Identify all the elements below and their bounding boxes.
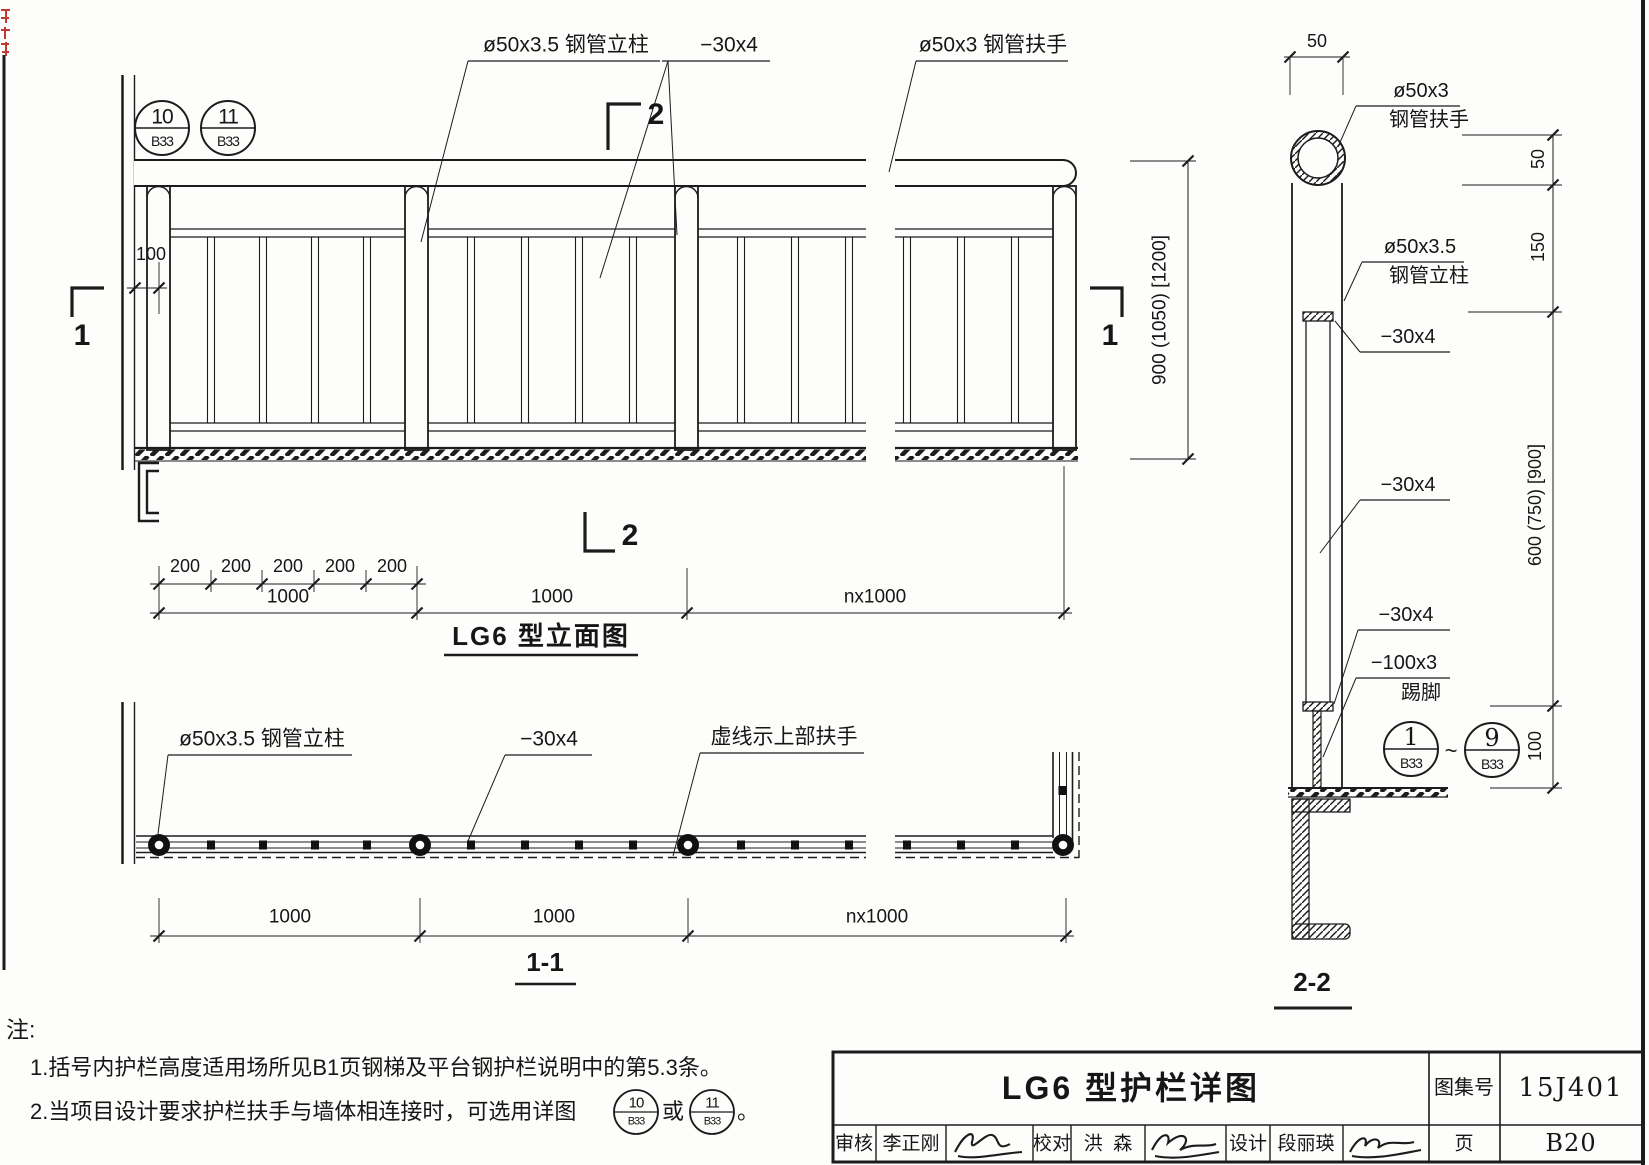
section-title: 2-2	[1293, 969, 1331, 995]
sect-dim-top-50: 50	[1307, 32, 1327, 50]
note-item-2-or: 或	[662, 1101, 684, 1123]
titleblock-title: LG6 型护栏详图	[1002, 1072, 1260, 1104]
elev-dim-nx1000: nx1000	[844, 588, 906, 607]
designer-name: 段丽瑛	[1277, 1135, 1334, 1154]
note-bubble11-num: 11	[705, 1096, 719, 1111]
atlas-label: 图集号	[1434, 1078, 1494, 1098]
plan-dim-1000b: 1000	[533, 908, 575, 927]
section-linework	[1274, 52, 1562, 1009]
note-bubble10-num: 10	[629, 1096, 644, 1111]
sect-toprail-label: −30x4	[1380, 327, 1435, 347]
sect-post-spec: ø50x3.5	[1384, 237, 1456, 257]
sect-toe-spec: −100x3	[1371, 653, 1437, 673]
elev-dim-1000b: 1000	[531, 588, 573, 607]
reviewer-name: 李正刚	[882, 1135, 939, 1154]
checker-label: 校对	[1033, 1135, 1071, 1154]
note-bubble11-ref: B33	[704, 1117, 721, 1128]
sect-dim-100: 100	[1526, 731, 1544, 761]
elev-dim-height: 900 (1050) [1200]	[1151, 235, 1170, 385]
note-bubble10-ref: B33	[628, 1117, 645, 1128]
sect-bubble1-num: 1	[1403, 725, 1418, 749]
elev-dim-200-5: 200	[377, 557, 407, 575]
elev-section1-marker-right: 1	[1102, 321, 1119, 351]
atlas-number: 15J401	[1518, 1075, 1623, 1101]
page-label: 页	[1454, 1135, 1473, 1154]
elev-dim-1000a: 1000	[267, 588, 309, 607]
plan-dim-1000a: 1000	[269, 908, 311, 927]
elev-dim-200-2: 200	[221, 557, 251, 575]
notes-head: 注:	[6, 1019, 35, 1042]
elev-flatbar-label: −30x4	[700, 35, 758, 56]
sect-post-name: 钢管立柱	[1389, 266, 1469, 286]
sect-dim-150: 150	[1529, 232, 1547, 262]
elev-dim-200-3: 200	[273, 557, 303, 575]
elev-dim-200-1: 200	[170, 557, 200, 575]
elev-section2-marker-top: 2	[648, 100, 665, 130]
plan-flatbar-label: −30x4	[520, 729, 578, 750]
sect-toe-name: 踢脚	[1401, 683, 1441, 703]
sect-dim-main: 600 (750) [900]	[1526, 444, 1544, 566]
sect-bubble1-ref: B33	[1400, 756, 1422, 770]
elev-section2-marker-bottom: 2	[622, 521, 639, 551]
sect-bubble9-ref: B33	[1481, 757, 1503, 771]
note-item-2: 2.当项目设计要求护栏扶手与墙体相连接时，可选用详图	[30, 1101, 576, 1123]
elev-bubble11-ref: B33	[217, 134, 239, 148]
elev-section1-marker-left: 1	[74, 321, 91, 351]
note-item-1: 1.括号内护栏高度适用场所见B1页钢梯及平台钢护栏说明中的第5.3条。	[30, 1057, 722, 1079]
checker-name: 洪 森	[1084, 1135, 1133, 1154]
plan-dim-nx1000: nx1000	[846, 908, 908, 927]
drawing-linework	[0, 0, 1649, 1165]
plan-dashed-label: 虚线示上部扶手	[711, 727, 858, 748]
sect-botrail-label: −30x4	[1378, 605, 1433, 625]
note-item-2-end: 。	[737, 1101, 759, 1123]
sect-dim-50: 50	[1529, 149, 1547, 169]
elev-dim-200-4: 200	[325, 557, 355, 575]
signature-marks	[955, 1134, 1421, 1158]
elev-handrail-label: ø50x3 钢管扶手	[919, 35, 1067, 56]
plan-title: 1-1	[526, 949, 564, 975]
sect-handrail-spec: ø50x3	[1393, 81, 1449, 101]
plan-post-label: ø50x3.5 钢管立柱	[179, 729, 345, 750]
red-watermark-fragment	[1, 9, 10, 56]
sect-bubble9-num: 9	[1484, 726, 1499, 750]
drawing-sheet: 10 B33 11 B33 ø50x3.5 钢管立柱 −30x4 ø50x3 钢…	[0, 0, 1649, 1165]
elev-dim-100: 100	[136, 245, 166, 263]
sect-handrail-name: 钢管扶手	[1389, 110, 1469, 130]
elev-bubble11-num: 11	[218, 107, 238, 128]
page-number: B20	[1545, 1131, 1596, 1155]
sect-midbar-label: −30x4	[1380, 475, 1435, 495]
sect-tilde: ~	[1445, 740, 1458, 762]
elevation-title: LG6 型立面图	[452, 623, 630, 649]
reviewer-label: 审核	[835, 1135, 873, 1154]
elev-post-label: ø50x3.5 钢管立柱	[483, 35, 649, 56]
elev-bubble10-num: 10	[151, 107, 172, 128]
designer-label: 设计	[1229, 1135, 1267, 1154]
elev-bubble10-ref: B33	[151, 134, 173, 148]
